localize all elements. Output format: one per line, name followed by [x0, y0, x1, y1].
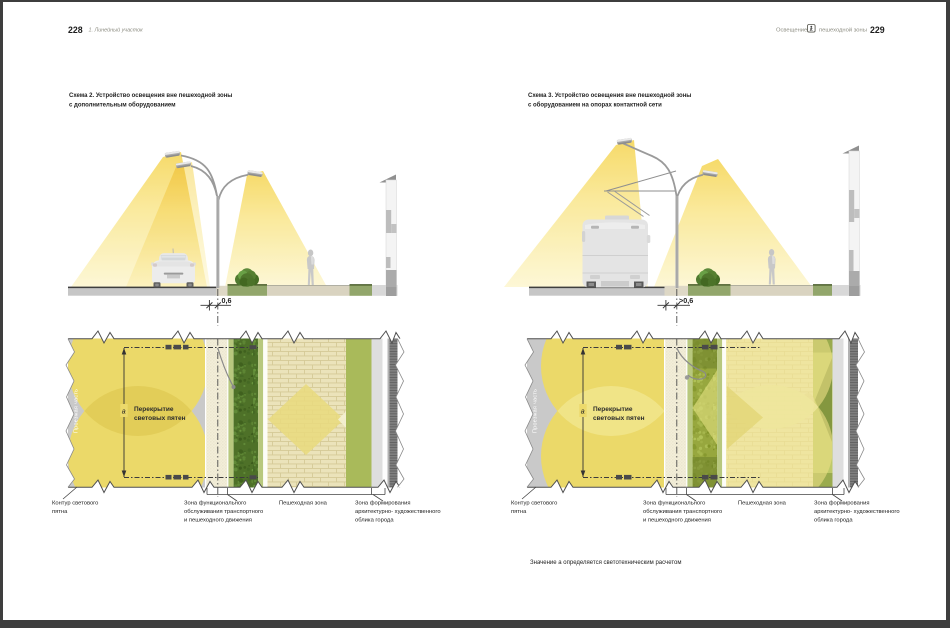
svg-text:Схема 3. Устройство освещения: Схема 3. Устройство освещения вне пешехо…: [528, 92, 691, 99]
svg-text:Зона функционального: Зона функционального: [643, 501, 705, 507]
svg-text:228: 228: [68, 25, 83, 35]
svg-text:световых пятен: световых пятен: [593, 415, 645, 422]
svg-text:Пешеходная зона: Пешеходная зона: [738, 501, 787, 507]
svg-text:обслуживания транспортного: обслуживания транспортного: [184, 509, 263, 515]
svg-text:Зона формирования: Зона формирования: [355, 501, 410, 507]
svg-text:Схема 2. Устройство освещения: Схема 2. Устройство освещения вне пешехо…: [69, 92, 232, 99]
svg-text:1. Линейный участок: 1. Линейный участок: [89, 27, 144, 34]
svg-text:Контур светового: Контур светового: [52, 501, 98, 507]
svg-text:световых пятен: световых пятен: [134, 415, 186, 422]
svg-text:Проезжая часть: Проезжая часть: [533, 389, 539, 433]
svg-text:и пешеходного движения: и пешеходного движения: [184, 518, 252, 524]
svg-text:a: a: [122, 409, 126, 416]
svg-text:облика города: облика города: [355, 518, 394, 524]
svg-text:>0,6: >0,6: [679, 296, 693, 305]
svg-text:Проезжая часть: Проезжая часть: [74, 389, 80, 433]
svg-text:и пешеходного движения: и пешеходного движения: [643, 518, 711, 524]
svg-text:Значение а определяется светот: Значение а определяется светотехническим…: [530, 560, 681, 566]
svg-text:Перекрытие: Перекрытие: [593, 406, 633, 413]
svg-text:облика города: облика города: [814, 518, 853, 524]
svg-text:Пешеходная зона: Пешеходная зона: [279, 501, 328, 507]
svg-text:Освещение: Освещение: [776, 28, 807, 34]
svg-text:Зона функционального: Зона функционального: [184, 501, 246, 507]
svg-text:архитектурно- художественного: архитектурно- художественного: [355, 509, 441, 515]
svg-text:архитектурно- художественного: архитектурно- художественного: [814, 509, 900, 515]
svg-text:с оборудованием на опорах конт: с оборудованием на опорах контактной сет…: [528, 102, 662, 109]
svg-text:пятна: пятна: [52, 509, 68, 515]
svg-text:Зона формирования: Зона формирования: [814, 501, 869, 507]
svg-text:пешеходной зоны: пешеходной зоны: [819, 27, 867, 34]
svg-text:обслуживания транспортного: обслуживания транспортного: [643, 509, 722, 515]
svg-text:Перекрытие: Перекрытие: [134, 406, 174, 413]
svg-text:229: 229: [870, 25, 885, 35]
svg-text:с дополнительным оборудованием: с дополнительным оборудованием: [69, 102, 176, 109]
svg-text:0,6: 0,6: [222, 296, 232, 305]
svg-text:Контур светового: Контур светового: [511, 501, 557, 507]
svg-text:a: a: [581, 409, 585, 416]
svg-text:пятна: пятна: [511, 509, 527, 515]
